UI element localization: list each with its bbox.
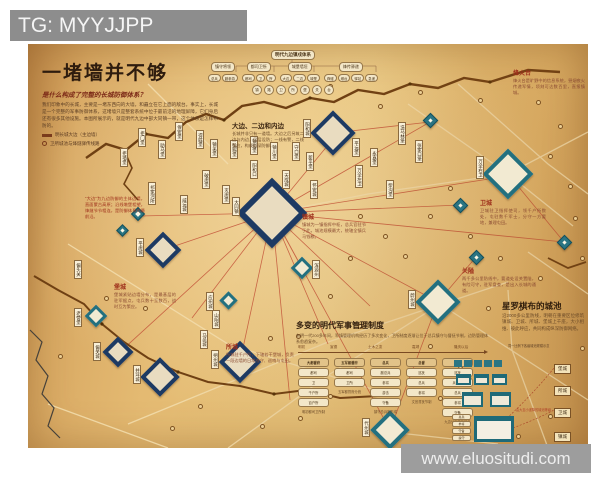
fort-label: 永嘉堡	[370, 148, 378, 167]
org-leaf-pill: 急递	[365, 74, 378, 82]
annotation-text: 长城并非只有一道墙。大边之后另筑二边与内边，层层设防；一线有警，二线策应，构成纵…	[232, 131, 304, 149]
fort-label: 破虏堡	[202, 170, 210, 189]
timeline-pill: 都司	[298, 368, 329, 377]
fort-label: 威远城	[180, 195, 188, 214]
annotation-title: 卫城	[480, 198, 546, 207]
hierarchy-city-square	[490, 392, 511, 407]
hierarchy-city-square	[454, 360, 462, 367]
hierarchy-label: 所城	[554, 386, 571, 396]
poster: 一堵墙并不够 是什么构成了完整的长城防御体系？ 我们印象中的长城，主要是一堵东西…	[28, 44, 588, 448]
fort-icon-平虏城	[145, 232, 182, 269]
fort-label: 马邑城	[200, 330, 208, 349]
timeline-pill: 副总兵	[370, 368, 401, 377]
fort-icon-万全右卫	[483, 149, 534, 200]
beacon-tower-icon	[580, 256, 585, 261]
fort-icon-minor	[116, 224, 129, 237]
fort-label: 新平堡	[306, 152, 314, 171]
map-annotation: 所城所城驻千户所，下辖若干堡城，负责一段边墙的日常戍守、巡哨与屯田。	[226, 342, 294, 364]
fort-center-dot	[457, 202, 462, 207]
org-circle-badge: 卫	[276, 85, 286, 95]
timeline-columns: 大都督府都司卫千户所百户所明初都司卫所制五军都督府都司卫所五军都督府分统总兵副总…	[298, 358, 473, 424]
timeline-caption: 五军都督府分统	[334, 390, 365, 394]
timeline-era-label: 宣德	[330, 345, 337, 350]
timeline-era-label: 土木之变	[368, 345, 382, 350]
beacon-tower-icon	[58, 354, 63, 359]
fort-icon-应州城	[219, 291, 237, 309]
beacon-tower-icon	[478, 98, 483, 103]
org-circles: 镇路卫所堡关台	[252, 85, 334, 95]
timeline-pill: 都司	[334, 368, 365, 377]
hierarchy-pills: 总兵参将守备操守	[452, 414, 471, 441]
org-groups: 镇守将领总兵副参游都司卫所都司卫所城堡墙垣大边二边城堡烽传驿递烽燧墩台驿站急递	[208, 62, 378, 82]
timeline-pill: 卫所	[334, 378, 365, 387]
fort-icon-minor	[556, 234, 572, 250]
fort-icon-minor	[452, 197, 468, 213]
map-annotation: 烽火台烽火台是旷野中的信息系统，昼烟夜火传递军情，顷刻可达数百里，直报镇城。	[513, 68, 585, 96]
org-group-pill: 城堡墙垣	[288, 62, 312, 72]
beacon-tower-icon	[448, 186, 453, 191]
hierarchy-label: 镇城	[554, 432, 571, 442]
beacon-tower-icon	[428, 214, 433, 219]
beacon-icon	[42, 141, 47, 146]
fort-label: 大同镇	[232, 197, 240, 216]
fort-label: 拒墙堡	[120, 148, 128, 167]
fort-label: 浑源州	[312, 260, 320, 279]
beacon-tower-icon	[548, 154, 553, 159]
timeline-pill: 总兵	[370, 358, 401, 367]
legend-label: 卫所城池与烽燧驿传线路	[50, 141, 100, 147]
beacon-tower-icon	[383, 234, 388, 239]
annotation-text: “大边”为九边防御的主体边墙，直面蒙古高原；沿线墩堡相望，烽燧节节相连，是防御体…	[85, 196, 145, 220]
fort-label: 平远堡	[352, 138, 360, 157]
fort-label: 万全右卫	[476, 156, 484, 179]
org-circle-badge: 路	[264, 85, 274, 95]
org-circle-badge: 台	[324, 85, 334, 95]
org-circle-badge: 堡	[300, 85, 310, 95]
timeline-pill: 百户所	[298, 398, 329, 407]
timeline-heading: 多变的明代军事管理制度	[296, 320, 496, 331]
annotation-title: 所城	[226, 342, 294, 351]
title-block: 一堵墙并不够 是什么构成了完整的长城防御体系？ 我们印象中的长城，主要是一堵东西…	[42, 58, 218, 147]
hierarchy-label: 堡城	[554, 364, 571, 374]
hierarchy-rank-pill: 参将	[452, 421, 471, 427]
annotation-title: 堡城	[114, 282, 176, 291]
beacon-tower-icon	[170, 426, 175, 431]
hierarchy-label: 卫城	[554, 408, 571, 418]
beacon-tower-icon	[573, 216, 578, 221]
timeline-paragraph: 有明一代200多年间，军镇管理机构经历了多次变化，卫所制度逐渐让位于总兵镇守与督…	[296, 333, 488, 344]
fort-icon-井坪城	[140, 357, 180, 397]
page-title: 一堵墙并不够	[42, 58, 218, 85]
org-leaf-pill: 烽燧	[324, 74, 337, 82]
org-group-pill: 烽传驿递	[339, 62, 363, 72]
fort-label: 祁家河所	[148, 182, 156, 205]
org-leaves: 烽燧墩台驿站急递	[324, 74, 378, 82]
hierarchy-rank-pill: 操守	[452, 435, 471, 441]
map-annotation: “大边”为九边防御的主体边墙，直面蒙古高原；沿线墩堡相望，烽燧节节相连，是防御体…	[85, 196, 145, 220]
annotation-title: 烽火台	[513, 68, 585, 77]
timeline-era-label: 明初	[298, 345, 305, 350]
beacon-tower-icon	[498, 256, 503, 261]
org-leaf-pill: 卫	[256, 74, 265, 82]
org-chart: 明代九边镇戍体系镇守将领总兵副参游都司卫所都司卫所城堡墙垣大边二边城堡烽传驿递烽…	[204, 50, 382, 95]
hierarchy-city-square	[474, 360, 482, 367]
org-group: 城堡墙垣大边二边城堡	[280, 62, 320, 82]
fort-center-dot	[561, 239, 566, 244]
timeline-pill: 参将	[370, 378, 401, 387]
org-leaves: 大边二边城堡	[280, 74, 320, 82]
map-annotation: 镇城镇城为一镇指挥中枢，总兵官驻节于此，城池规模最大，统辖全镇兵马钱粮。	[302, 212, 366, 240]
annotation-text: 沿2000多公里防线，明朝在重要区位修筑镇城、卫城、所城、堡城上千座，大小相维、…	[502, 313, 584, 332]
org-group-pill: 都司卫所	[247, 62, 271, 72]
page-subtitle: 是什么构成了完整的长城防御体系？	[42, 89, 218, 99]
timeline-pill: 总督	[406, 358, 437, 367]
org-leaf-pill: 大边	[280, 74, 293, 82]
annotation-title: 星罗棋布的城池	[502, 300, 584, 312]
beacon-tower-icon	[428, 344, 433, 349]
timeline-era-label: 嘉靖	[412, 345, 419, 350]
hierarchy-red-note: 由大至小递降的城池等级	[516, 408, 554, 412]
fort-label: 井坪城	[133, 365, 141, 384]
org-leaves: 都司卫所	[242, 74, 276, 82]
fort-label: 平虏城	[136, 238, 144, 257]
timeline-pill: 游击	[370, 388, 401, 397]
timeline-caption: 文官督抚节制	[406, 400, 437, 404]
fort-label: 山阴城	[212, 310, 220, 329]
fort-label: 怀安城	[310, 180, 318, 199]
legend-label: 明长城大边（主边墙）	[55, 132, 100, 138]
timeline-pill: 五军都督府	[334, 358, 365, 367]
fort-label: 张家口堡	[415, 140, 423, 163]
fort-center-dot	[473, 254, 478, 259]
beacon-tower-icon	[378, 104, 383, 109]
org-circle-badge: 镇	[252, 85, 262, 95]
org-circle-badge: 关	[312, 85, 322, 95]
hierarchy-rank-pill: 守备	[452, 428, 471, 434]
timeline-pill: 卫	[298, 378, 329, 387]
annotation-text: 卫城驻卫指挥使司，领千户所数处，屯驻数千军士，分守一方要地，兼理屯田。	[480, 208, 546, 226]
map-annotation: 堡城堡城紧贴边墙分布，是最基层的驻军据点，屯兵数十至数百，战时互为策应。	[114, 282, 176, 310]
map-annotation: 关隘两千多公里防线中，要道处设关置隘，有险可守，驻军盘查，是出入长城的通道。	[462, 266, 536, 294]
legend-item: 明长城大边（主边墙）	[42, 132, 218, 138]
org-circle-badge: 所	[288, 85, 298, 95]
fort-label: 偏头关	[74, 260, 82, 279]
fort-icon-蔚州城	[415, 279, 460, 324]
annotation-text: 所城驻千户所，下辖若干堡城，负责一段边墙的日常戍守、巡哨与屯田。	[226, 352, 294, 364]
fort-icon-阳和城	[310, 110, 355, 155]
org-leaf-pill: 所	[266, 74, 275, 82]
timeline-caption: 镇守总兵制形成	[370, 410, 401, 414]
beacon-tower-icon	[104, 296, 109, 301]
fort-icon-minor	[422, 112, 438, 128]
fort-center-dot	[427, 117, 432, 122]
fort-center-dot	[120, 228, 124, 232]
fort-label: 洗马林堡	[398, 122, 406, 145]
beacon-tower-icon	[486, 306, 491, 311]
hierarchy-city-square	[494, 360, 502, 367]
annotation-title: 关隘	[462, 266, 536, 275]
hierarchy-rank-pill: 总兵	[452, 414, 471, 420]
watermark-bottom: www.eluositudi.com	[401, 444, 591, 473]
timeline-pill: 大都督府	[298, 358, 329, 367]
hierarchy-city-square	[474, 374, 489, 385]
fort-label: 柴沟堡	[386, 180, 394, 199]
annotation-title: 大边、二边和内边	[232, 120, 304, 130]
watermark-top: TG: MYYJJPP	[10, 10, 247, 41]
org-group: 都司卫所都司卫所	[242, 62, 276, 82]
timeline-pill: 巡抚	[406, 368, 437, 377]
org-root-pill: 明代九边镇戍体系	[271, 50, 315, 60]
timeline-pill: 千户所	[298, 388, 329, 397]
intro-paragraph: 我们印象中的长城，主要是一堵东西向的大墙，和矗立在它上面的敌台。事实上，长城是一…	[42, 102, 218, 130]
hierarchy-city-square	[456, 374, 471, 385]
hierarchy-city-square	[484, 360, 492, 367]
beacon-tower-icon	[328, 294, 333, 299]
fort-label: 朔州城	[211, 350, 219, 369]
beacon-tower-icon	[403, 254, 408, 259]
fort-label: 偏关城	[93, 342, 101, 361]
beacon-tower-icon	[558, 124, 563, 129]
hierarchy-city-square	[464, 360, 472, 367]
org-leaf-pill: 副参游	[222, 74, 238, 82]
org-leaf-pill: 城堡	[307, 74, 320, 82]
fort-label: 蔚州城	[408, 290, 416, 309]
fort-icon-minor	[468, 249, 484, 265]
fort-icon-大同镇	[237, 178, 308, 249]
beacon-tower-icon	[418, 90, 423, 95]
fort-label: 阳和城	[303, 119, 311, 138]
wall-icon	[42, 134, 52, 137]
fort-icon-浑源州	[291, 257, 314, 280]
timeline-pill: 守备	[370, 398, 401, 407]
beacon-tower-icon	[268, 336, 273, 341]
beacon-tower-icon	[568, 184, 573, 189]
map-annotation: 星罗棋布的城池沿2000多公里防线，明朝在重要区位修筑镇城、卫城、所城、堡城上千…	[502, 300, 584, 332]
annotation-text: 烽火台是旷野中的信息系统，昼烟夜火传递军情，顷刻可达数百里，直报镇城。	[513, 78, 585, 96]
timeline-column: 总督巡抚总兵参将文官督抚节制	[406, 358, 437, 424]
map-annotation: 大边、二边和内边长城并非只有一道墙。大边之后另筑二边与内边，层层设防；一线有警，…	[232, 120, 304, 149]
timeline-caption: 明初都司卫所制	[298, 410, 329, 414]
org-leaf-pill: 都司	[242, 74, 255, 82]
fort-label: 应州城	[206, 292, 214, 311]
timeline-pill: 参将	[406, 388, 437, 397]
map-annotation: 卫城卫城驻卫指挥使司，领千户所数处，屯驻数千军士，分守一方要地，兼理屯田。	[480, 198, 546, 226]
beacon-tower-icon	[260, 424, 265, 429]
fort-label: 天成城	[282, 170, 290, 189]
org-leaf-pill: 驿站	[351, 74, 364, 82]
fort-label: 万全左卫	[355, 165, 363, 188]
legend-item: 卫所城池与烽燧驿传线路	[42, 141, 218, 147]
annotation-text: 堡城紧贴边墙分布，是最基层的驻军据点，屯兵数十至数百，战时互为策应。	[114, 292, 176, 310]
annotation-title: 镇城	[302, 212, 366, 221]
hierarchy-city-square	[492, 374, 507, 385]
hierarchy-zhen-city-square	[474, 416, 514, 442]
beacon-tower-icon	[468, 234, 473, 239]
beacon-tower-icon	[538, 276, 543, 281]
beacon-tower-icon	[348, 256, 353, 261]
fort-icon-老营堡	[85, 305, 108, 328]
timeline-column: 五军都督府都司卫所五军都督府分统	[334, 358, 365, 424]
beacon-tower-icon	[536, 100, 541, 105]
timeline-section: 多变的明代军事管理制度 有明一代200多年间，军镇管理机构经历了多次变化，卫所制…	[296, 320, 496, 344]
timeline-pill: 总兵	[406, 378, 437, 387]
fort-icon-偏关城	[102, 336, 133, 367]
hierarchy-note: 同一比例下各级城池规模示意	[508, 344, 554, 348]
timeline-column: 总兵副总兵参将游击守备镇守总兵制形成	[370, 358, 401, 424]
hierarchy-city-square	[462, 392, 483, 407]
annotation-text: 两千多公里防线中，要道处设关置隘，有险可守，驻军盘查，是出入长城的通道。	[462, 276, 536, 294]
fort-label: 老营堡	[74, 308, 82, 327]
fort-label: 灭虏堡	[222, 185, 230, 204]
org-leaf-pill: 墩台	[338, 74, 351, 82]
timeline-column: 大都督府都司卫千户所百户所明初都司卫所制	[298, 358, 329, 424]
org-leaf-pill: 二边	[293, 74, 306, 82]
beacon-tower-icon	[198, 404, 203, 409]
legend: 明长城大边（主边墙）卫所城池与烽燧驿传线路	[42, 132, 218, 147]
fort-label: 阳和口	[250, 160, 258, 179]
org-group: 烽传驿递烽燧墩台驿站急递	[324, 62, 378, 82]
city-size-hierarchy: 同一比例下各级城池规模示意 由大至小递降的城池等级 总兵参将守备操守 堡城所城卫…	[452, 344, 586, 448]
annotation-text: 镇城为一镇指挥中枢，总兵官驻节于此，城池规模最大，统辖全镇兵马钱粮。	[302, 222, 366, 240]
